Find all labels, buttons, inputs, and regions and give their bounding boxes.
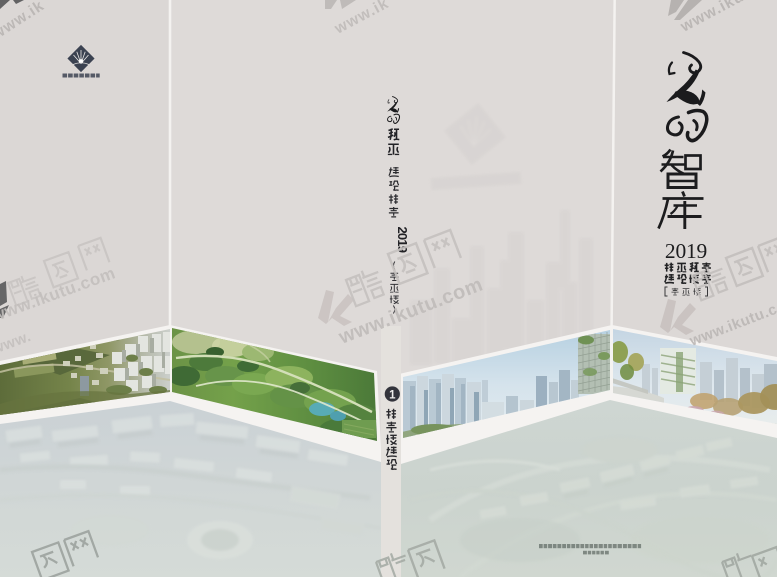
svg-text:1: 1 [389,390,396,402]
svg-text:2019: 2019 [665,239,707,263]
